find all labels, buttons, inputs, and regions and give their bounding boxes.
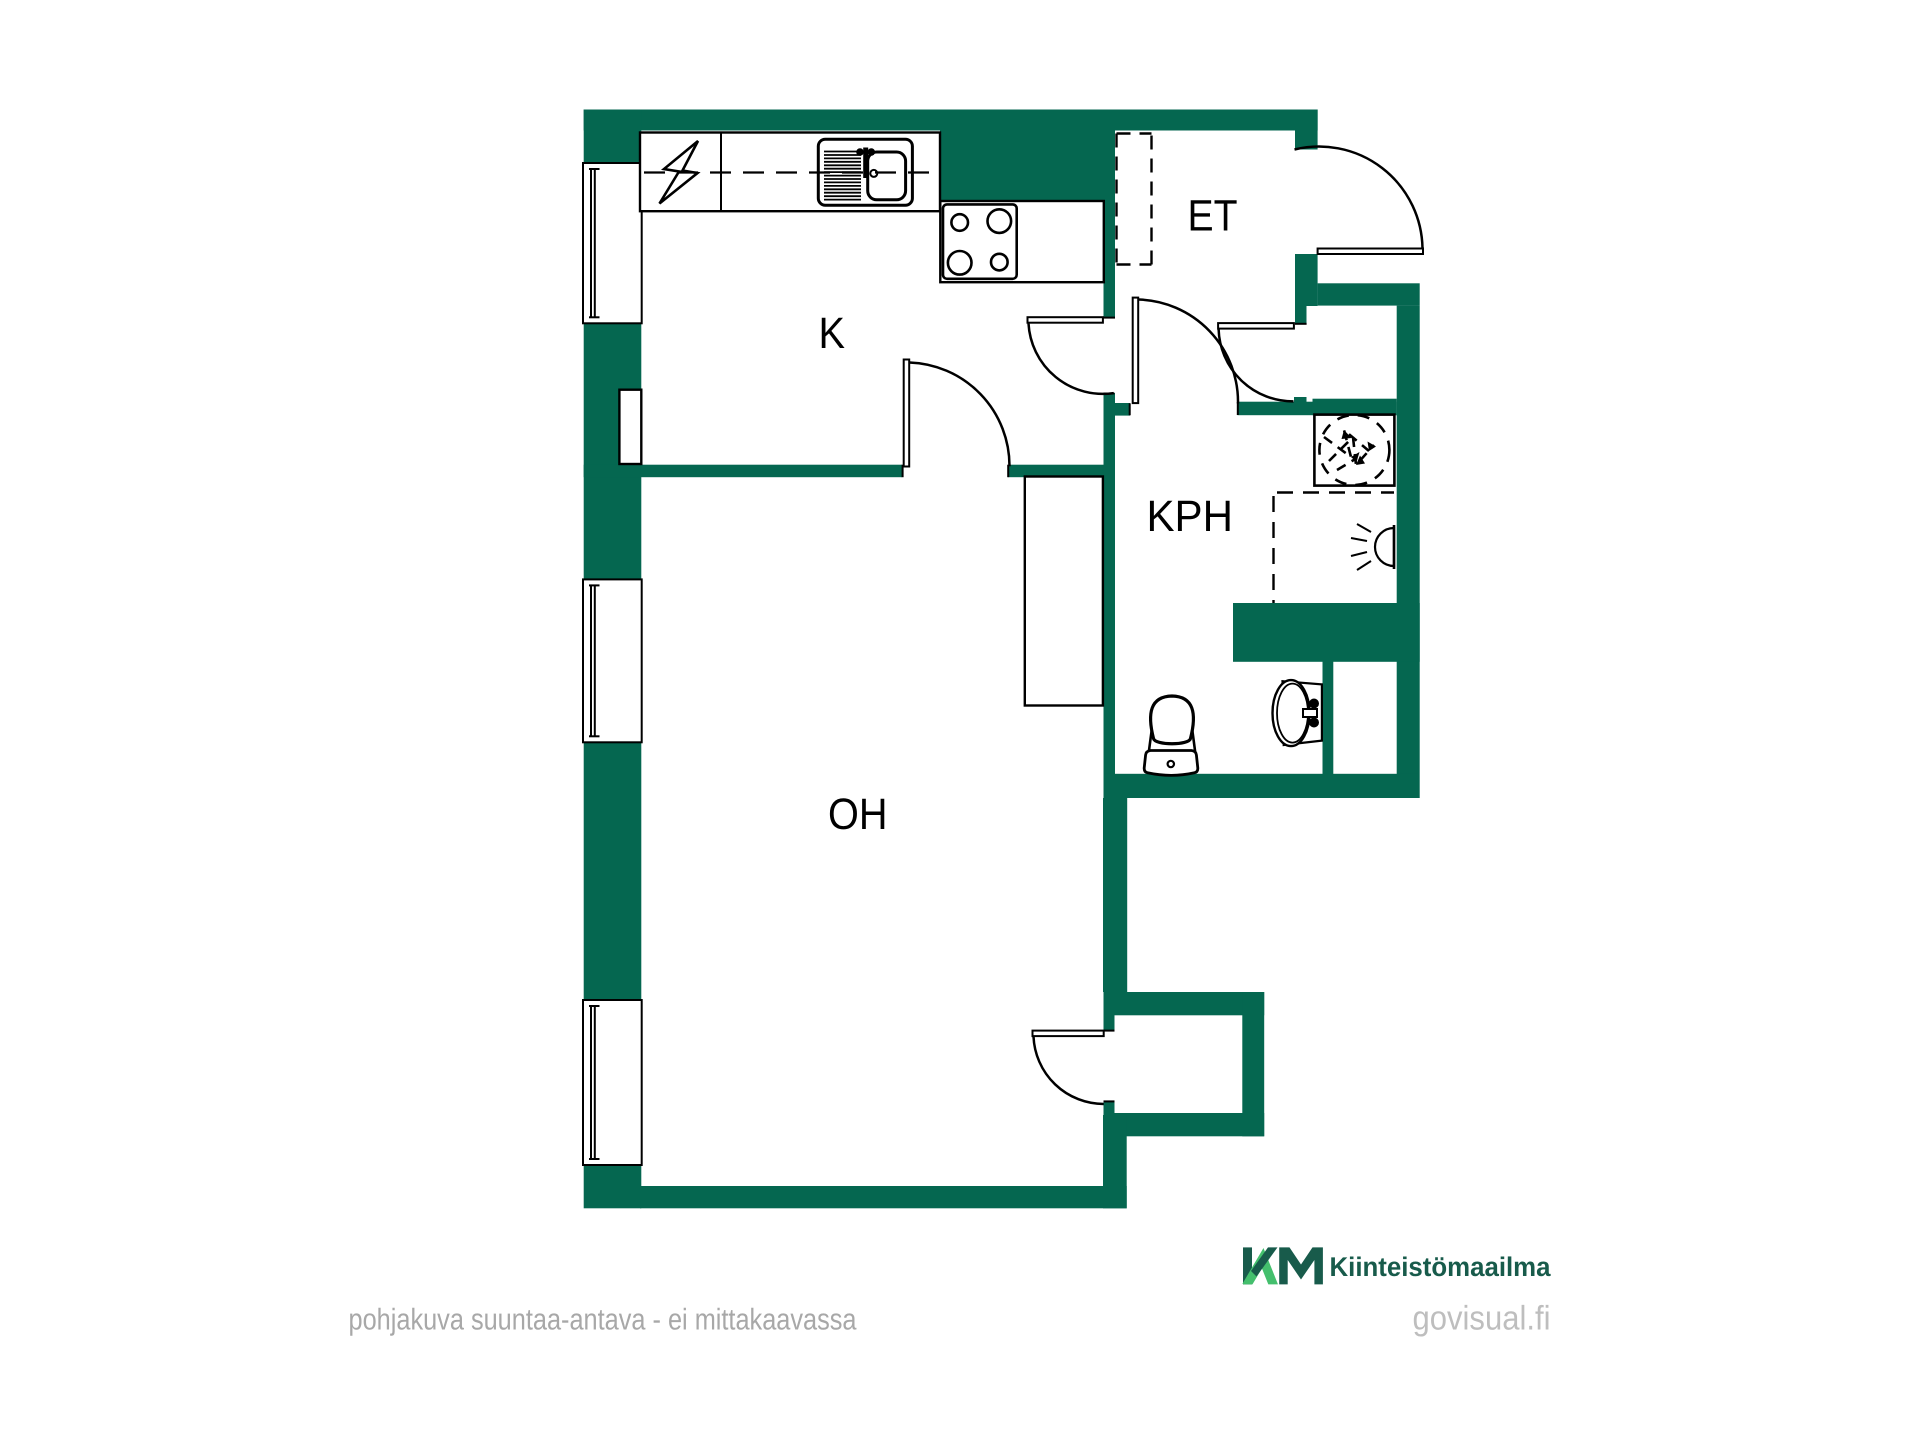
svg-text:Kiinteistömaailma: Kiinteistömaailma bbox=[1330, 1252, 1552, 1282]
svg-text:pohjakuva suuntaa-antava - ei: pohjakuva suuntaa-antava - ei mittakaava… bbox=[349, 1304, 857, 1337]
svg-text:govisual.fi: govisual.fi bbox=[1413, 1300, 1551, 1338]
svg-text:KPH: KPH bbox=[1147, 492, 1234, 541]
svg-text:OH: OH bbox=[828, 790, 888, 839]
svg-text:K: K bbox=[819, 309, 846, 358]
svg-text:ET: ET bbox=[1188, 192, 1238, 241]
